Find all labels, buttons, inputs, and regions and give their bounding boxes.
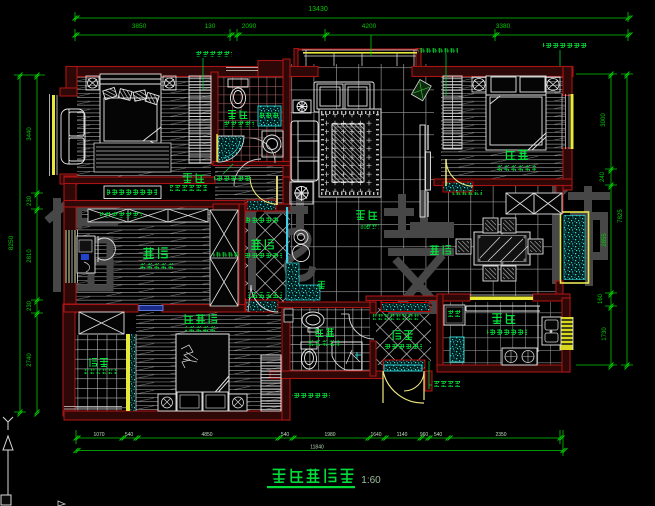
svg-text:4200: 4200: [362, 23, 377, 30]
svg-text:230: 230: [27, 195, 33, 206]
svg-text:1980: 1980: [324, 432, 335, 438]
svg-text:8250: 8250: [8, 235, 15, 250]
svg-text:3440: 3440: [27, 127, 33, 141]
svg-text:1730: 1730: [602, 327, 608, 341]
svg-text:11840: 11840: [310, 445, 324, 451]
svg-text:2740: 2740: [27, 353, 33, 367]
svg-text:2090: 2090: [242, 23, 257, 30]
svg-text:2855: 2855: [602, 233, 608, 247]
svg-text:2350: 2350: [495, 432, 506, 438]
svg-text:3850: 3850: [132, 23, 147, 30]
svg-text:130: 130: [205, 23, 216, 30]
svg-text:1:60: 1:60: [361, 475, 381, 486]
svg-text:230: 230: [27, 300, 33, 311]
svg-text:540: 540: [125, 432, 134, 438]
svg-text:3000: 3000: [601, 113, 607, 127]
svg-text:160: 160: [598, 293, 604, 304]
svg-text:240: 240: [600, 171, 606, 182]
svg-text:1640: 1640: [370, 432, 381, 438]
svg-text:540: 540: [281, 432, 290, 438]
svg-text:4850: 4850: [201, 432, 212, 438]
svg-text:1070: 1070: [93, 432, 104, 438]
svg-text:2810: 2810: [27, 249, 33, 263]
svg-text:960: 960: [420, 432, 429, 438]
svg-text:1140: 1140: [397, 432, 408, 438]
svg-text:3380: 3380: [496, 23, 511, 30]
svg-text:13430: 13430: [308, 6, 328, 13]
svg-text:7825: 7825: [618, 209, 624, 223]
svg-text:540: 540: [434, 432, 443, 438]
